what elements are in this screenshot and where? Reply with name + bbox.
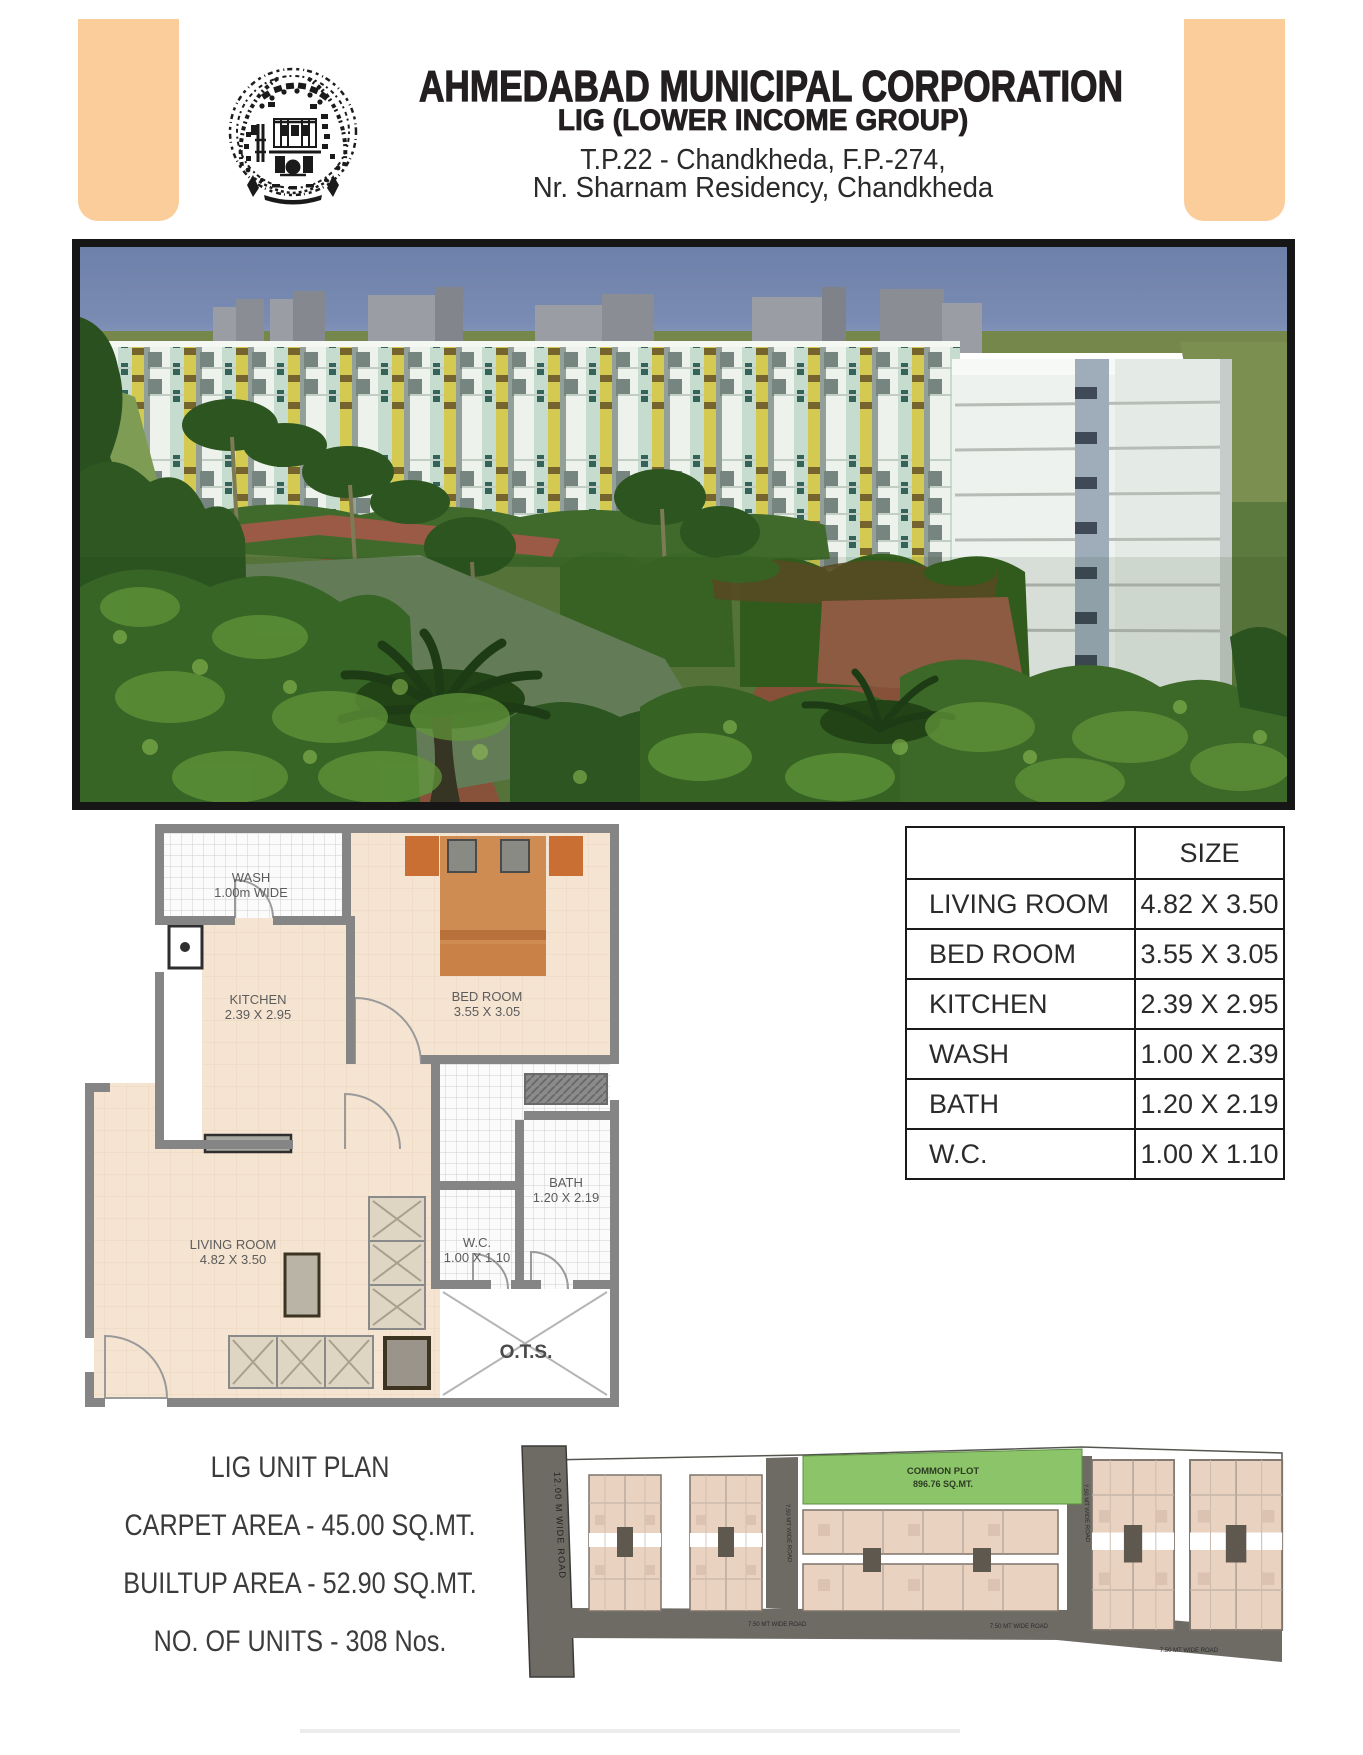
- svg-text:LIVING ROOM: LIVING ROOM: [190, 1237, 277, 1252]
- svg-text:1.00 X 1.10: 1.00 X 1.10: [444, 1250, 511, 1265]
- svg-text:BED ROOM: BED ROOM: [452, 989, 523, 1004]
- svg-text:4.82 X 3.50: 4.82 X 3.50: [200, 1252, 267, 1267]
- svg-text:1.20 X 2.19: 1.20 X 2.19: [533, 1190, 600, 1205]
- svg-text:7.50 MT WIDE ROAD: 7.50 MT WIDE ROAD: [748, 1622, 807, 1628]
- svg-text:BATH: BATH: [549, 1175, 583, 1190]
- svg-text:O.T.S.: O.T.S.: [500, 1342, 553, 1363]
- svg-text:1.00m WIDE: 1.00m WIDE: [214, 885, 288, 900]
- svg-text:KITCHEN: KITCHEN: [229, 992, 286, 1007]
- svg-text:2.39 X 2.95: 2.39 X 2.95: [225, 1007, 292, 1022]
- svg-text:896.76 SQ.MT.: 896.76 SQ.MT.: [913, 1479, 973, 1489]
- svg-text:WASH: WASH: [232, 870, 271, 885]
- svg-text:7.50 MT WIDE ROAD: 7.50 MT WIDE ROAD: [1160, 1648, 1219, 1654]
- svg-text:W.C.: W.C.: [463, 1235, 491, 1250]
- svg-text:3.55 X 3.05: 3.55 X 3.05: [454, 1004, 521, 1019]
- svg-text:7.50 MT WIDE ROAD: 7.50 MT WIDE ROAD: [990, 1624, 1049, 1630]
- svg-text:COMMON PLOT: COMMON PLOT: [907, 1466, 979, 1477]
